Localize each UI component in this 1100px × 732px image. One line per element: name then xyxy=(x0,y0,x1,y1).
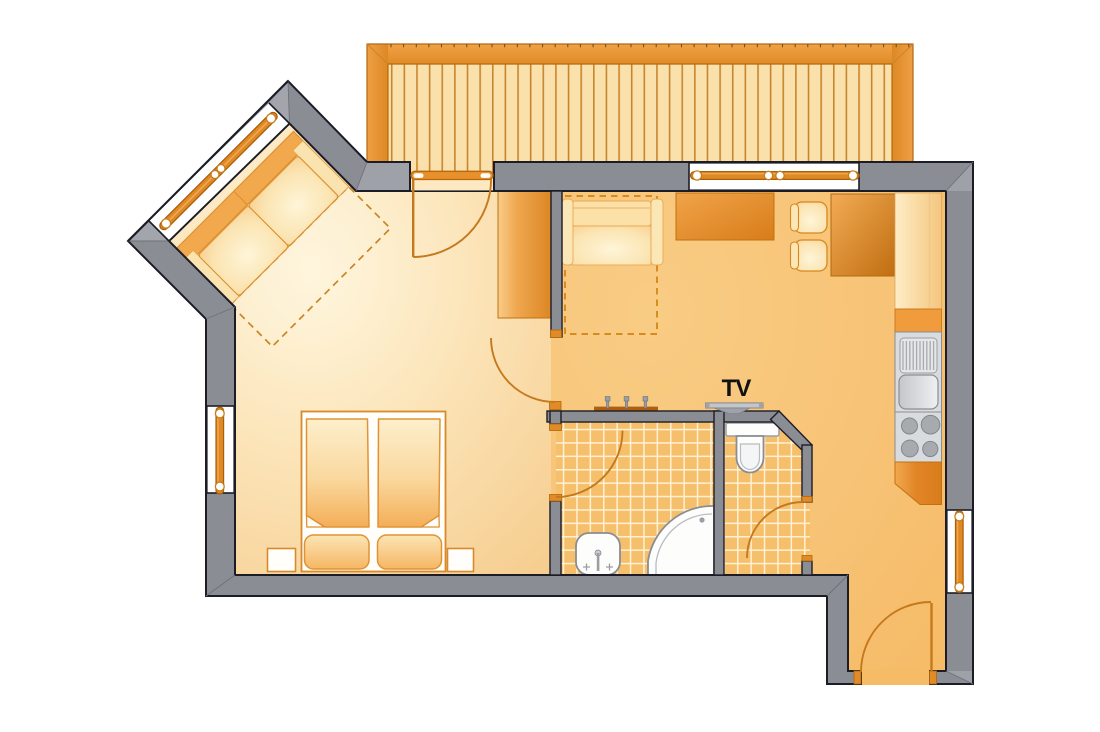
svg-text:TV: TV xyxy=(722,375,752,402)
